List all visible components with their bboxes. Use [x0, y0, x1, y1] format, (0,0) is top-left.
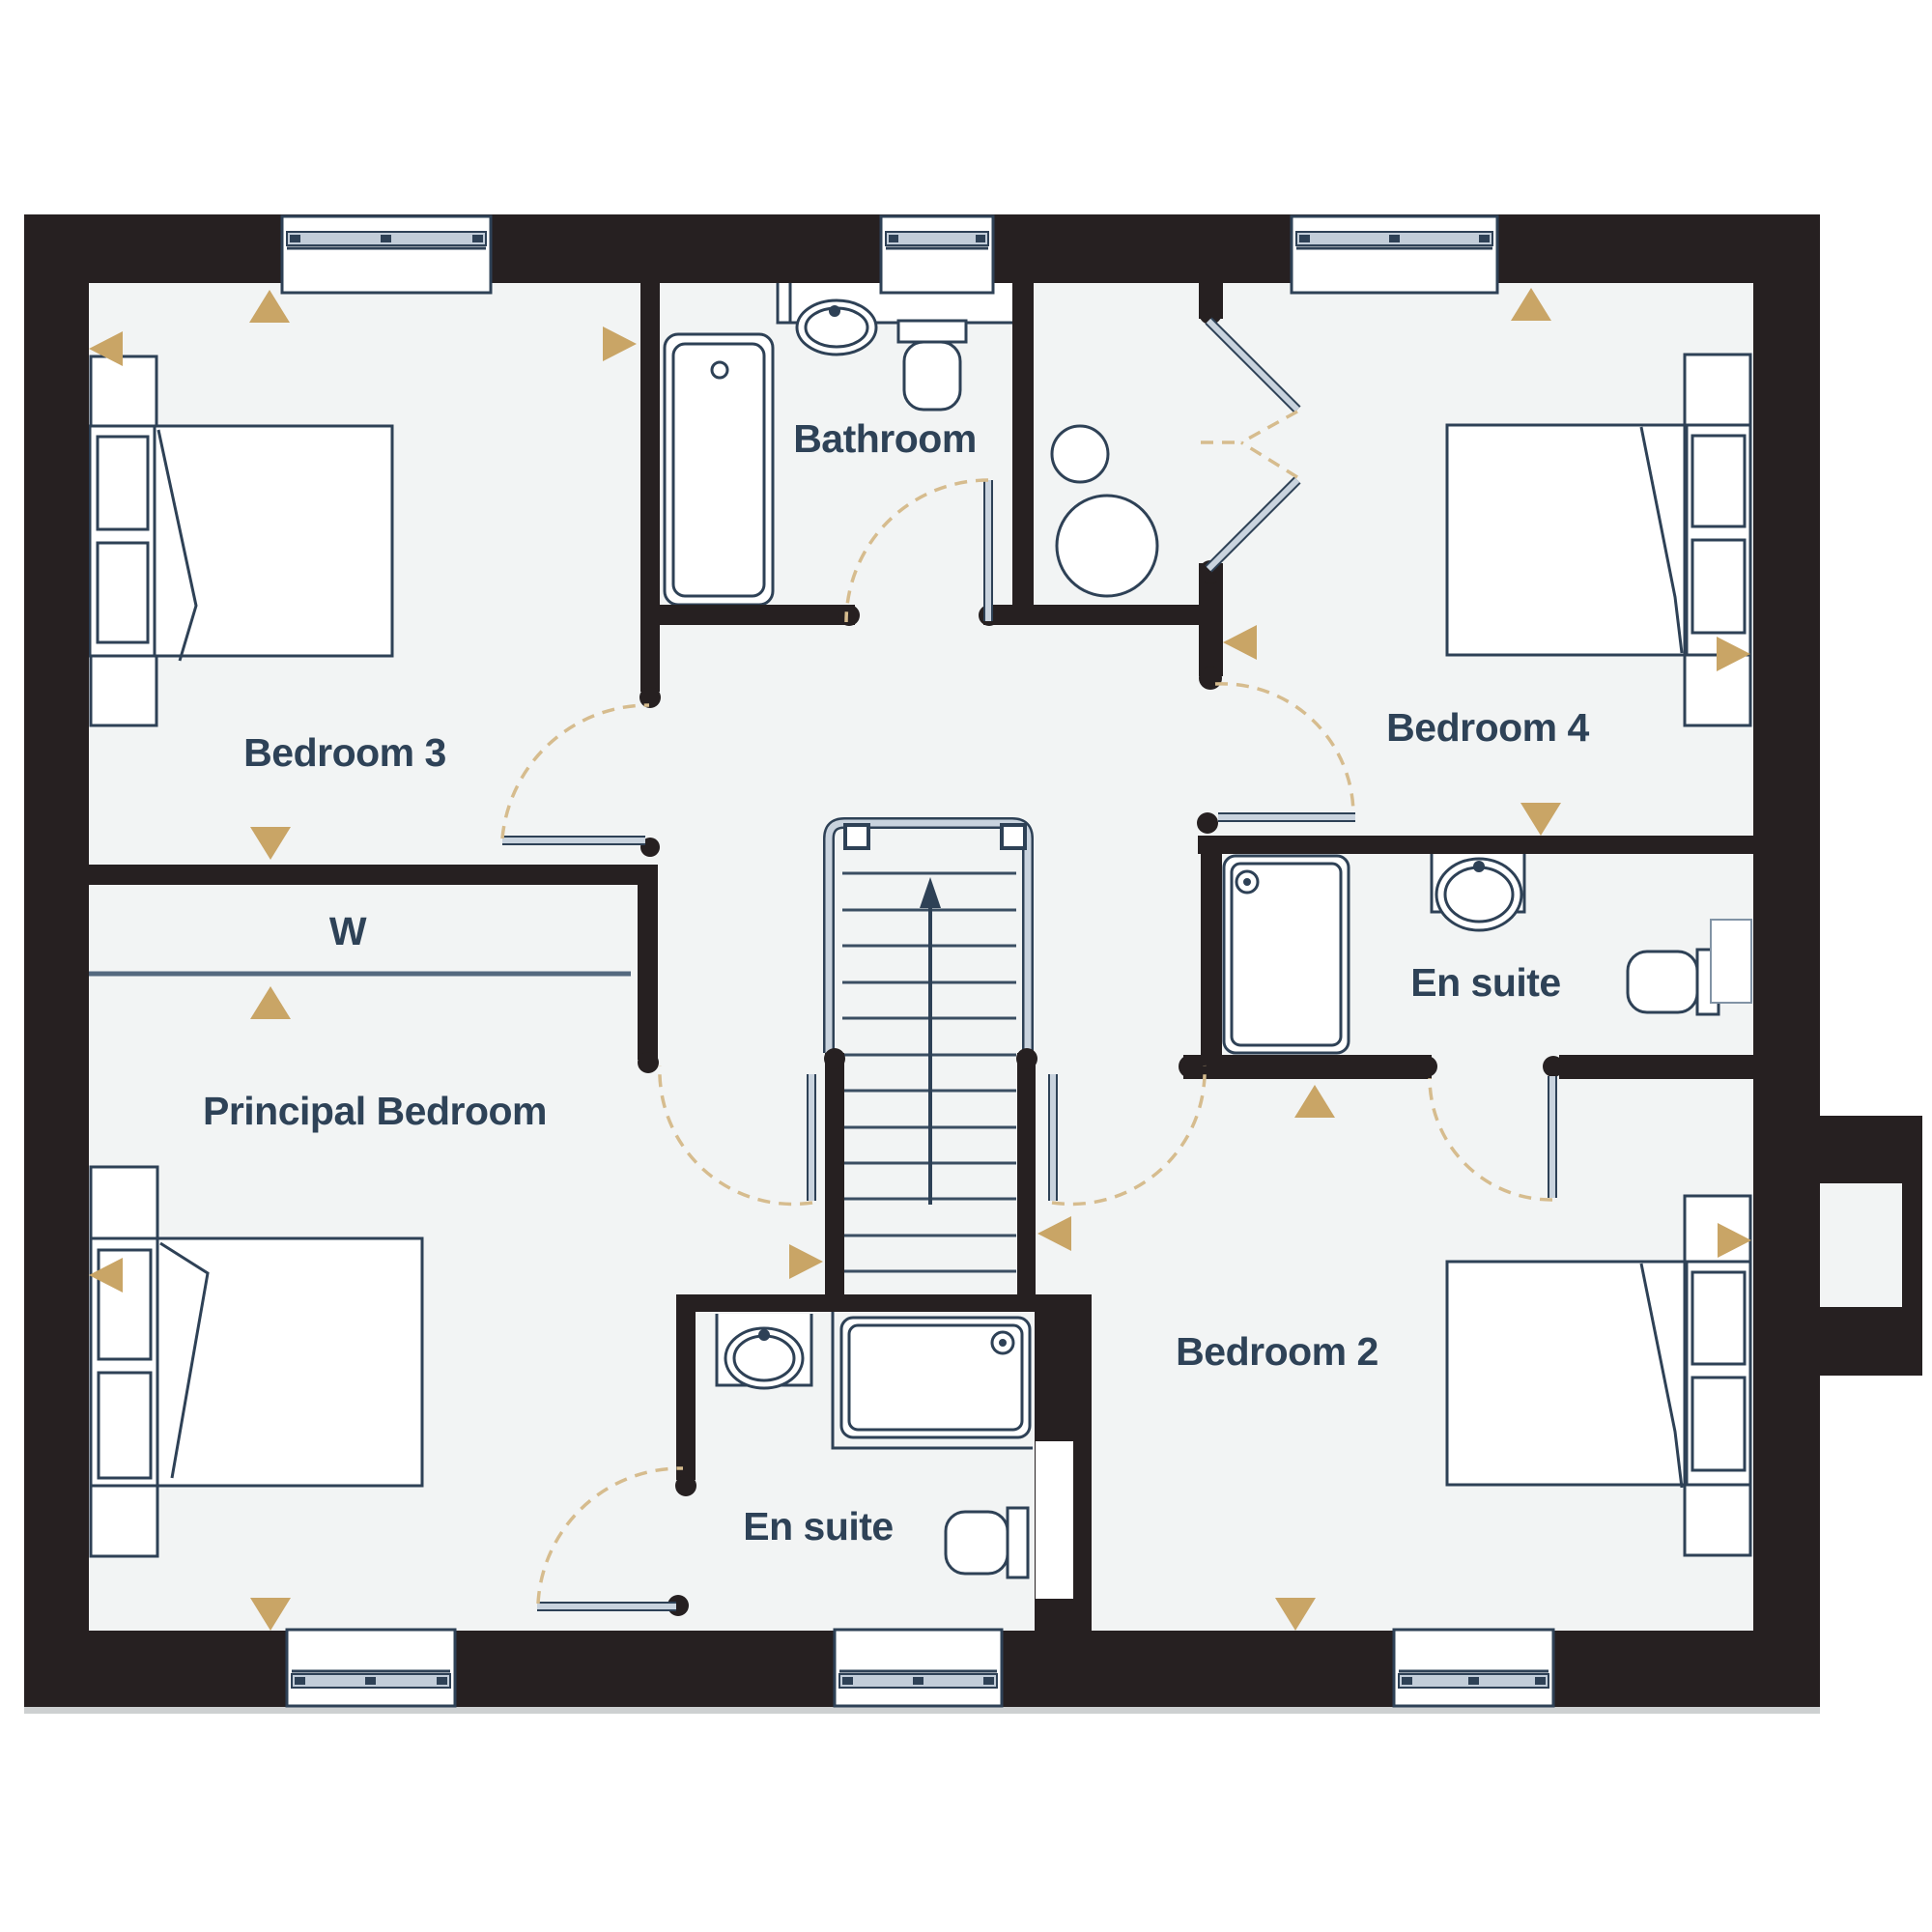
svg-text:W: W	[329, 909, 367, 953]
svg-text:Bathroom: Bathroom	[793, 416, 977, 461]
svg-text:En suite: En suite	[1410, 960, 1560, 1005]
svg-text:Principal Bedroom: Principal Bedroom	[203, 1089, 547, 1133]
svg-text:Bedroom 2: Bedroom 2	[1176, 1329, 1378, 1374]
svg-text:En suite: En suite	[743, 1504, 893, 1548]
svg-text:Bedroom 3: Bedroom 3	[243, 730, 446, 775]
svg-text:Bedroom 4: Bedroom 4	[1386, 705, 1589, 750]
